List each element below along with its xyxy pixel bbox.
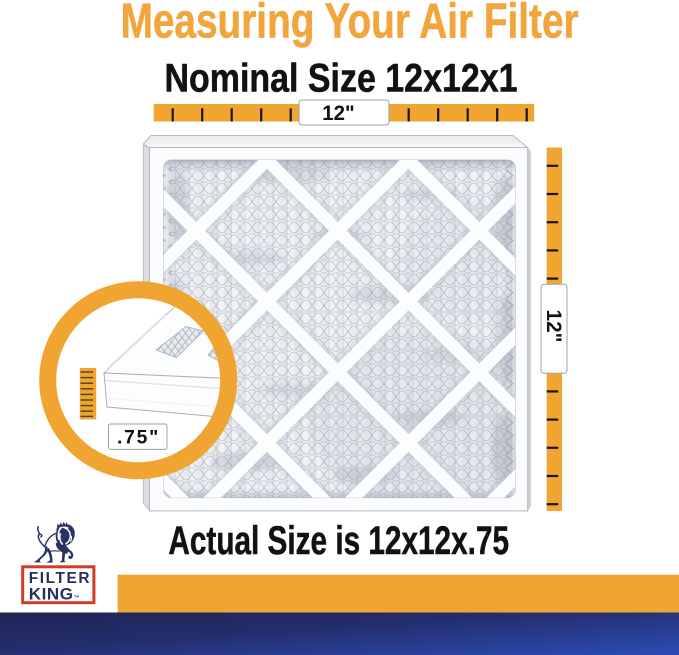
svg-text:Nominal Size 12x12x1: Nominal Size 12x12x1 — [165, 56, 518, 100]
svg-text:KING: KING — [29, 585, 73, 604]
svg-text:Actual Size is 12x12x.75: Actual Size is 12x12x.75 — [168, 519, 509, 563]
svg-text:Measuring Your Air Filter: Measuring Your Air Filter — [121, 0, 579, 49]
svg-text:12": 12" — [322, 101, 354, 125]
svg-text:12": 12" — [542, 310, 566, 343]
svg-text:.75": .75" — [117, 428, 158, 449]
svg-text:™: ™ — [74, 595, 80, 602]
